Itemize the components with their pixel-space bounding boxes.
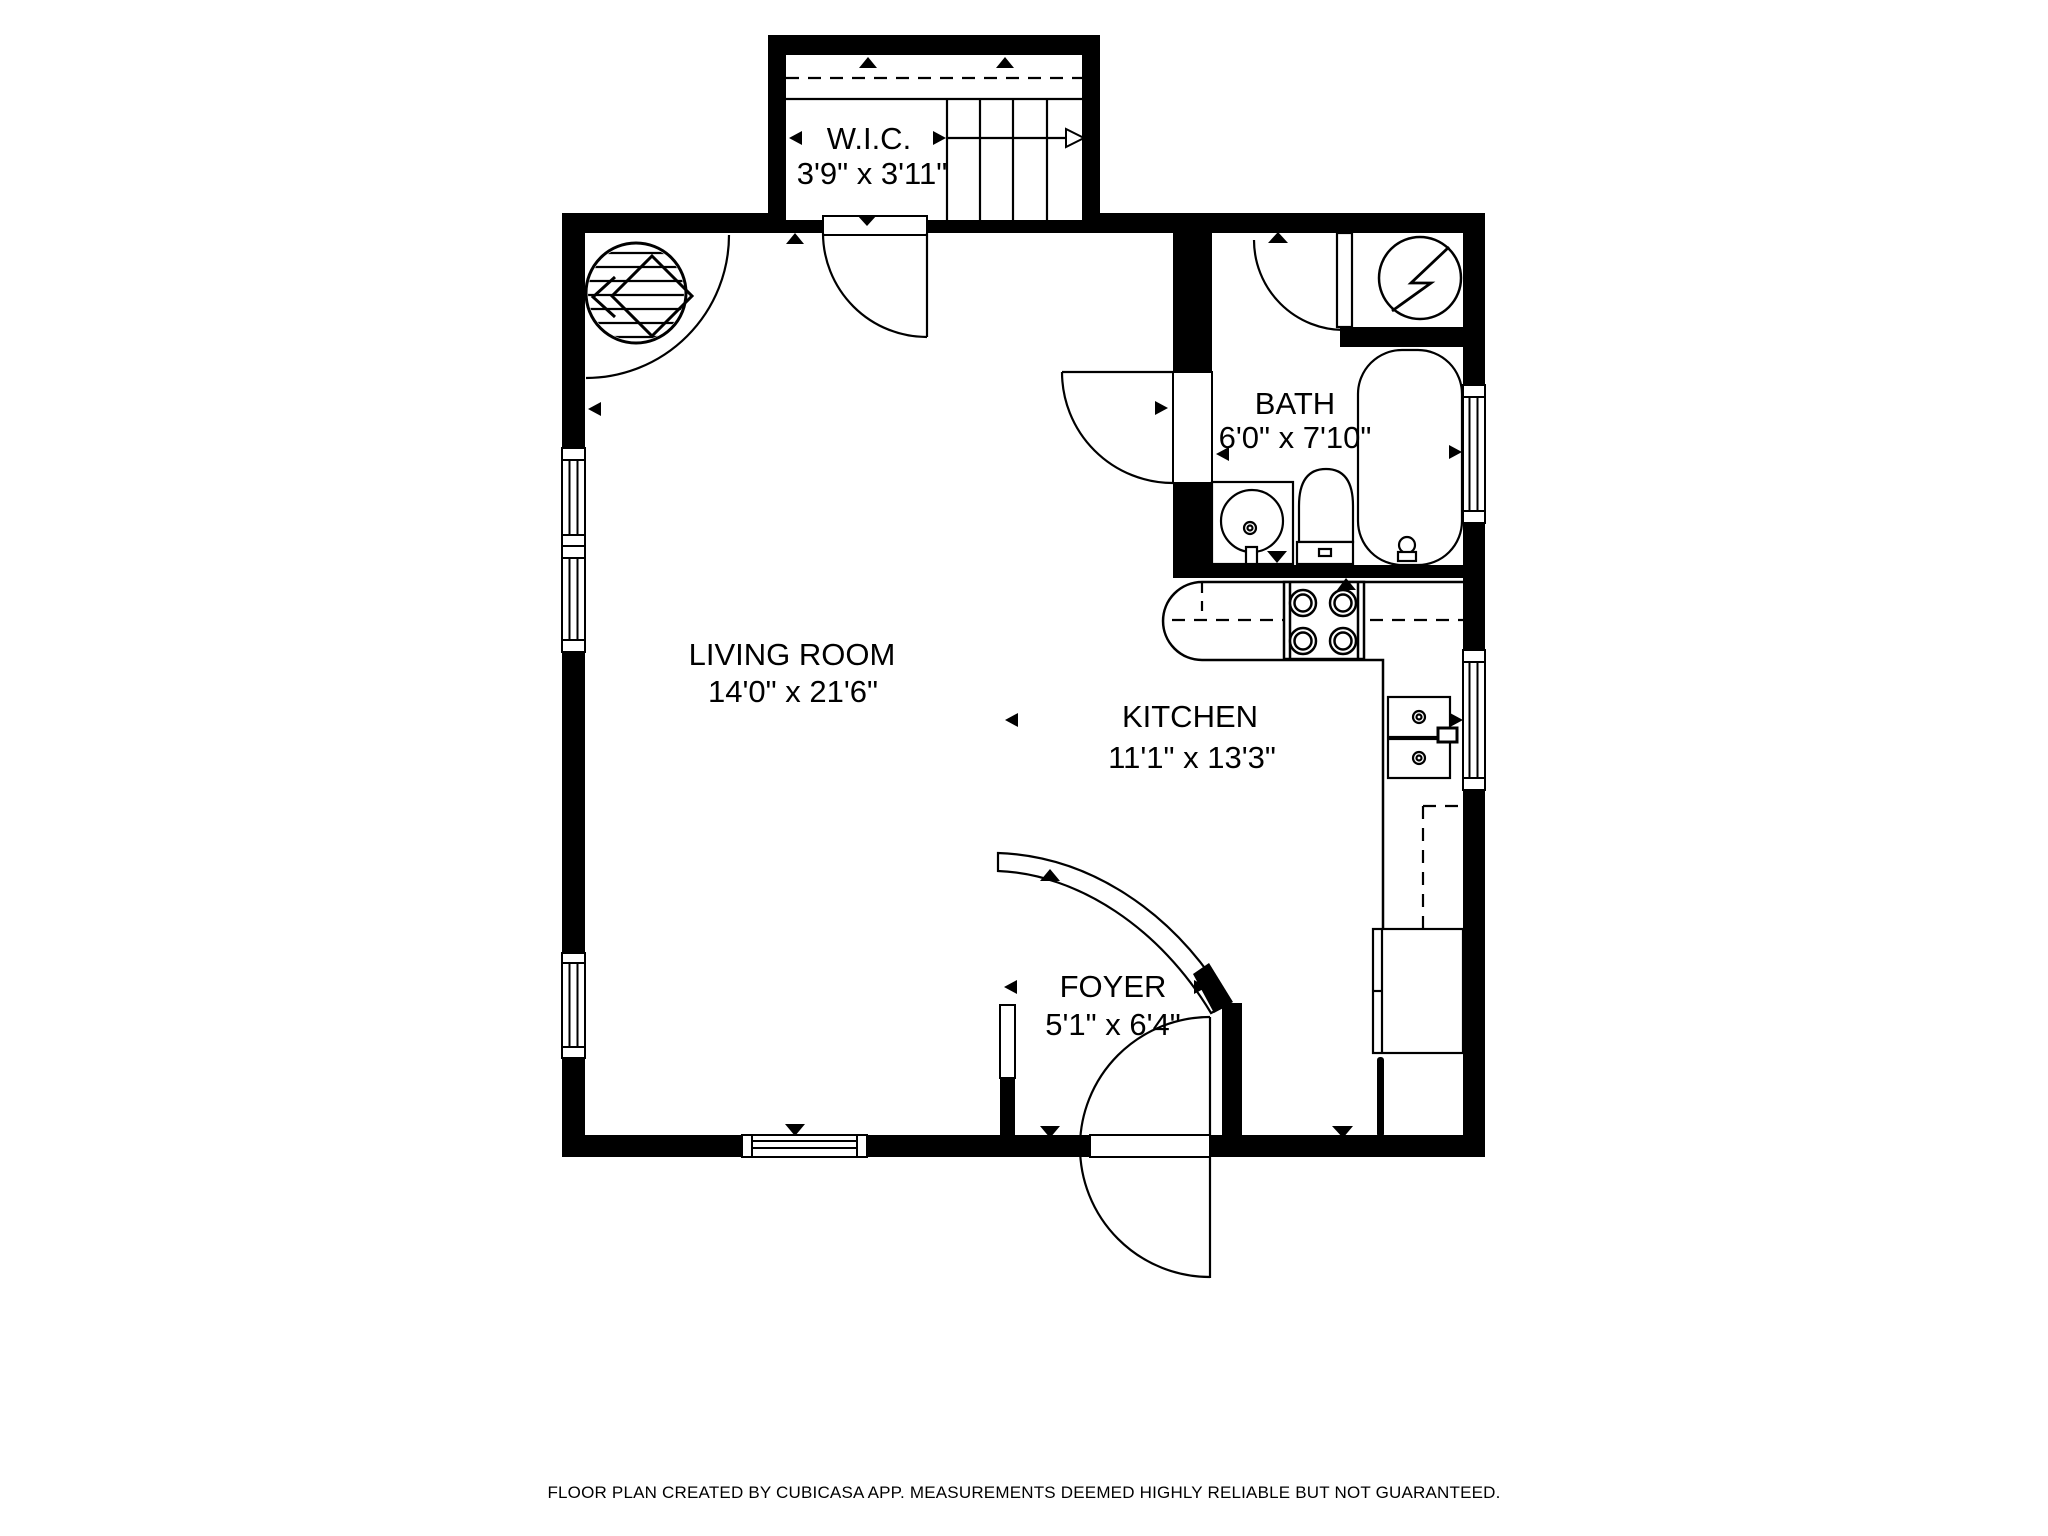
window-bath — [1463, 385, 1485, 523]
window-kitchen — [1463, 650, 1485, 790]
kitchen-sink-icon — [1388, 697, 1457, 778]
wall-bottom — [562, 1135, 1485, 1157]
foyer-label: FOYER — [1060, 969, 1167, 1004]
arrow-right-icon — [1155, 401, 1168, 415]
refrigerator-icon — [1373, 929, 1463, 1053]
arrow-left-icon — [1005, 713, 1018, 727]
window-bottom — [742, 1135, 867, 1157]
fireplace-icon — [586, 243, 692, 343]
closet-door — [1254, 233, 1352, 330]
wic-label: W.I.C. — [827, 121, 911, 156]
wic-dims: 3'9" x 3'11" — [797, 156, 947, 191]
living-room-dims: 14'0" x 21'6" — [708, 674, 878, 709]
water-heater-icon — [1379, 237, 1461, 319]
wall-kitchen-stub — [1377, 1057, 1384, 1137]
bath-door-opening — [1173, 372, 1212, 483]
tall-cabinet-dashed — [1423, 806, 1463, 928]
kitchen-label: KITCHEN — [1122, 699, 1258, 734]
footer-disclaimer: FLOOR PLAN CREATED BY CUBICASA APP. MEAS… — [547, 1483, 1500, 1502]
floor-plan-page: W.I.C. 3'9" x 3'11" BATH 6'0" x 7'10" LI… — [0, 0, 2048, 1536]
bath-label: BATH — [1255, 386, 1335, 421]
wall-foyer-west-stub — [1000, 1078, 1015, 1137]
wall-foyer-east — [1222, 1003, 1242, 1137]
window-left-lower — [562, 953, 585, 1058]
foyer-dims: 5'1" x 6'4" — [1045, 1007, 1181, 1042]
bathtub-icon — [1358, 350, 1462, 565]
floor-plan-canvas: W.I.C. 3'9" x 3'11" BATH 6'0" x 7'10" LI… — [0, 0, 2048, 1536]
arrow-left-icon — [588, 402, 601, 416]
stove-icon — [1284, 582, 1364, 659]
arrow-up-icon — [1268, 232, 1288, 243]
foyer-opening-stub — [1000, 1005, 1015, 1078]
wic-door-opening — [823, 216, 927, 235]
arrow-right-icon — [1450, 713, 1463, 727]
bath-dims: 6'0" x 7'10" — [1219, 420, 1372, 455]
kitchen-dims: 11'1" x 13'3" — [1108, 740, 1276, 775]
arrow-left-icon — [1004, 980, 1017, 994]
wic-door — [823, 233, 927, 337]
toilet-icon — [1297, 469, 1353, 564]
living-room-label: LIVING ROOM — [689, 637, 896, 672]
bath-door — [1062, 372, 1173, 483]
entry-door-opening — [1090, 1135, 1210, 1157]
bath-fixtures — [1212, 350, 1462, 565]
wall-bath-south — [1212, 565, 1463, 578]
window-left-double — [562, 448, 585, 652]
arrow-up-icon — [786, 233, 804, 244]
wall-closet-south — [1340, 327, 1463, 347]
